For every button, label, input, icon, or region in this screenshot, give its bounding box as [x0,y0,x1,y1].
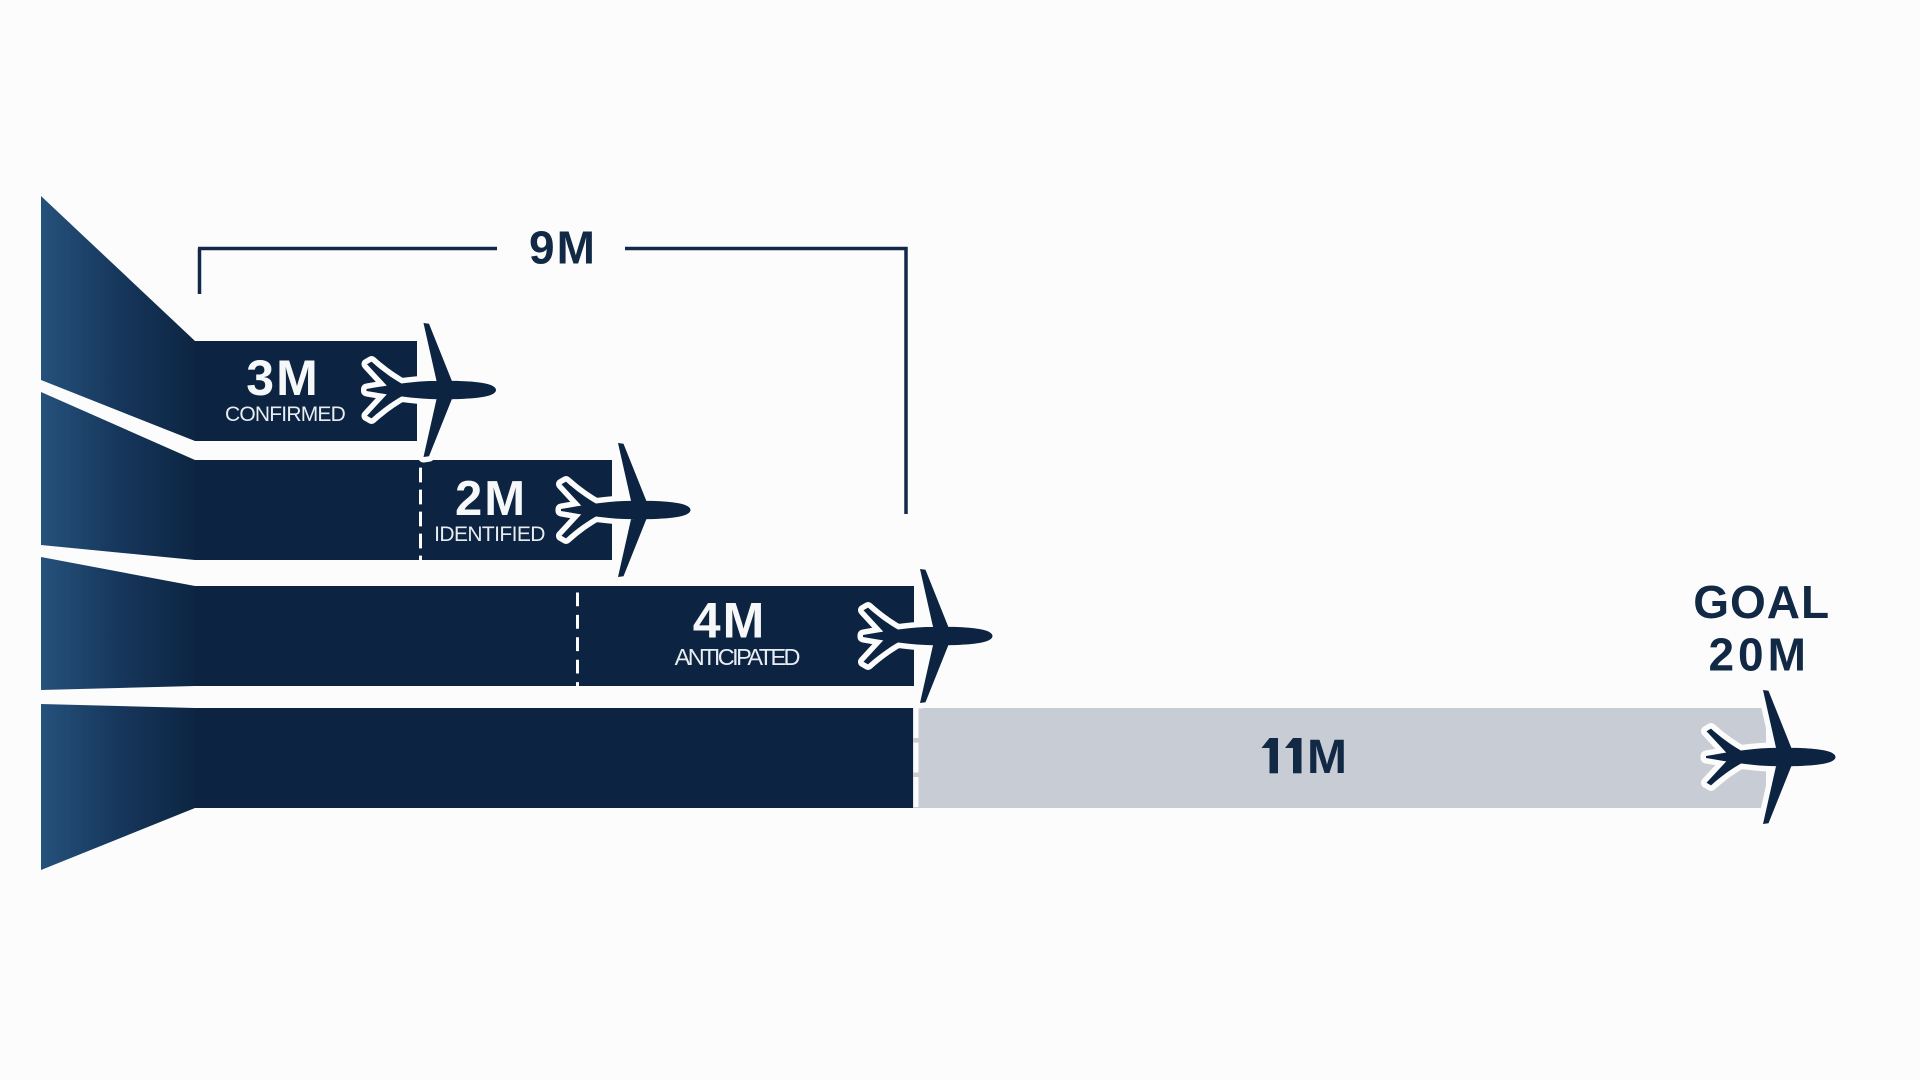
svg-text:4M: 4M [693,593,766,649]
svg-text:20M: 20M [1708,629,1809,681]
svg-text:IDENTIFIED: IDENTIFIED [434,523,545,546]
svg-text:3M: 3M [246,350,319,406]
svg-text:M: M [1307,731,1347,784]
svg-text:CONFIRMED: CONFIRMED [225,403,346,426]
svg-text:ANTICIPATED: ANTICIPATED [675,644,800,670]
svg-text:2M: 2M [455,472,527,526]
svg-text:GOAL: GOAL [1693,576,1830,628]
svg-text:9M: 9M [529,222,597,274]
